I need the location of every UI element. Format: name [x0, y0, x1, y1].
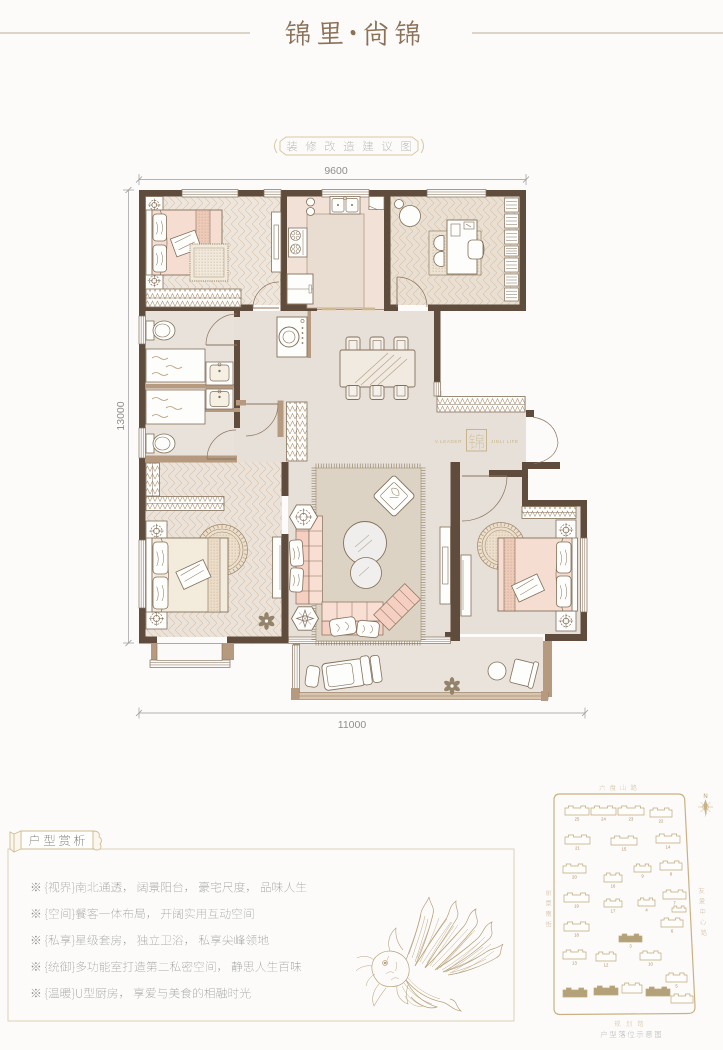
svg-text:15: 15	[622, 847, 627, 852]
svg-text:22: 22	[659, 819, 664, 824]
svg-text:16: 16	[611, 884, 616, 889]
svg-text:20: 20	[572, 875, 577, 880]
svg-text:V.LEADER: V.LEADER	[435, 439, 462, 444]
svg-text:N: N	[703, 794, 707, 800]
svg-text:24: 24	[601, 817, 606, 822]
svg-text:9600: 9600	[324, 165, 348, 177]
svg-text:25: 25	[575, 817, 580, 822]
svg-text:13000: 13000	[115, 401, 127, 430]
svg-text:12: 12	[604, 963, 609, 968]
svg-text:23: 23	[629, 817, 634, 822]
svg-text:18: 18	[574, 933, 579, 938]
svg-text:13: 13	[572, 961, 577, 966]
svg-text:21: 21	[575, 846, 580, 851]
svg-text:10: 10	[648, 962, 653, 967]
svg-text:14: 14	[666, 845, 671, 850]
svg-text:JINLI LIFE: JINLI LIFE	[491, 439, 519, 444]
svg-text:11000: 11000	[338, 719, 367, 731]
svg-text:17: 17	[611, 909, 616, 914]
svg-text:19: 19	[574, 904, 579, 909]
